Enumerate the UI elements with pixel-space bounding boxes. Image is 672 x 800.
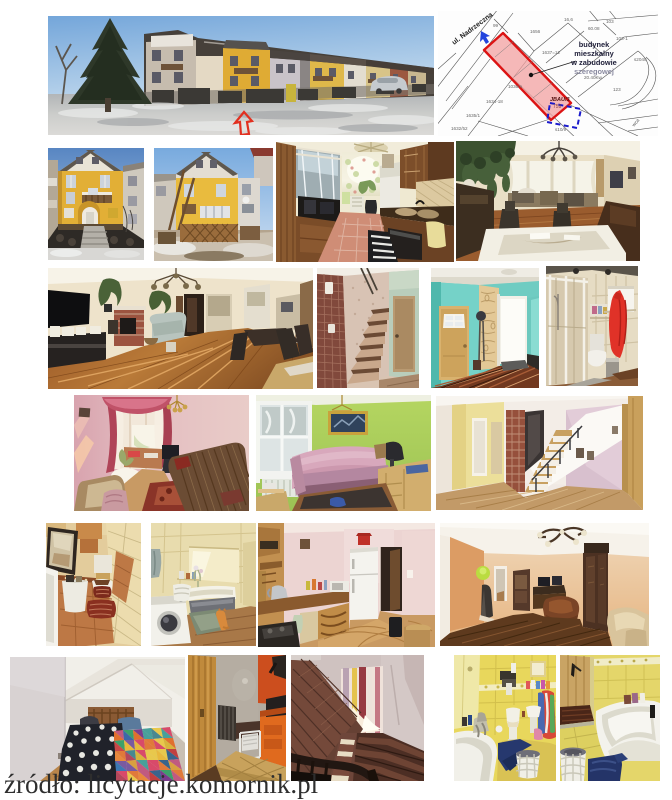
svg-text:w zabudowie: w zabudowie [570, 58, 617, 67]
svg-text:103-1: 103-1 [616, 36, 628, 41]
svg-text:16,6: 16,6 [564, 17, 573, 22]
svg-text:123: 123 [613, 87, 621, 92]
svg-text:1036m: 1036m [508, 84, 522, 89]
svg-text:1635/1: 1635/1 [466, 113, 480, 118]
svg-text:s2040: s2040 [634, 57, 647, 62]
svg-text:1632/52: 1632/52 [451, 126, 468, 131]
svg-text:1656: 1656 [530, 29, 541, 34]
svg-text:s10/9: s10/9 [555, 127, 567, 132]
svg-text:1637=12: 1637=12 [542, 50, 560, 55]
svg-text:60.08: 60.08 [588, 26, 600, 31]
svg-text:mieszkalny: mieszkalny [574, 49, 614, 58]
svg-text:JBAU/3: JBAU/3 [550, 97, 570, 103]
svg-text:1634-18: 1634-18 [486, 99, 503, 104]
svg-text:20.40Kw: 20.40Kw [584, 75, 603, 80]
svg-text:103: 103 [606, 19, 614, 24]
svg-text:759: 759 [553, 104, 562, 110]
svg-text:budynek: budynek [579, 40, 610, 49]
svg-text:99: 99 [493, 23, 499, 28]
